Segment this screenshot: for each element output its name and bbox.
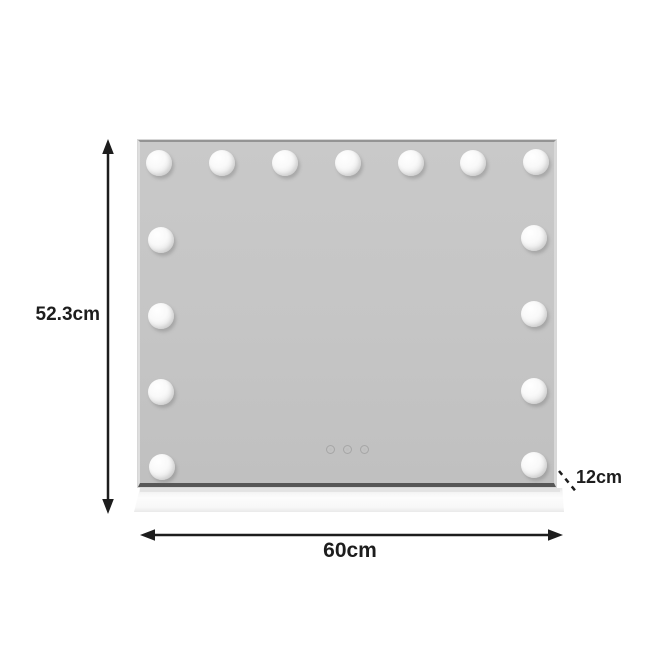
light-bulb [148,379,174,405]
light-bulb [335,150,361,176]
mirror-panel [138,140,556,487]
light-bulb [272,150,298,176]
touch-control-row [326,445,369,454]
touch-sensor-icon[interactable] [360,445,369,454]
light-bulb [460,150,486,176]
light-bulb [148,303,174,329]
height-dimension-arrow [102,139,114,514]
touch-sensor-icon[interactable] [343,445,352,454]
light-bulb [521,225,547,251]
light-bulb [398,150,424,176]
height-dimension-label: 52.3cm [18,304,100,326]
light-bulb [146,150,172,176]
mirror-base-top-edge [140,488,560,492]
light-bulb [521,378,547,404]
touch-sensor-icon[interactable] [326,445,335,454]
light-bulb [209,150,235,176]
light-bulb [523,149,549,175]
light-bulb [149,454,175,480]
depth-dimension-label: 12cm [576,467,622,488]
width-dimension-label: 60cm [290,539,410,563]
light-bulb [521,452,547,478]
light-bulb [148,227,174,253]
product-dimension-diagram: 52.3cm 60cm 12cm [0,0,650,650]
light-bulb [521,301,547,327]
